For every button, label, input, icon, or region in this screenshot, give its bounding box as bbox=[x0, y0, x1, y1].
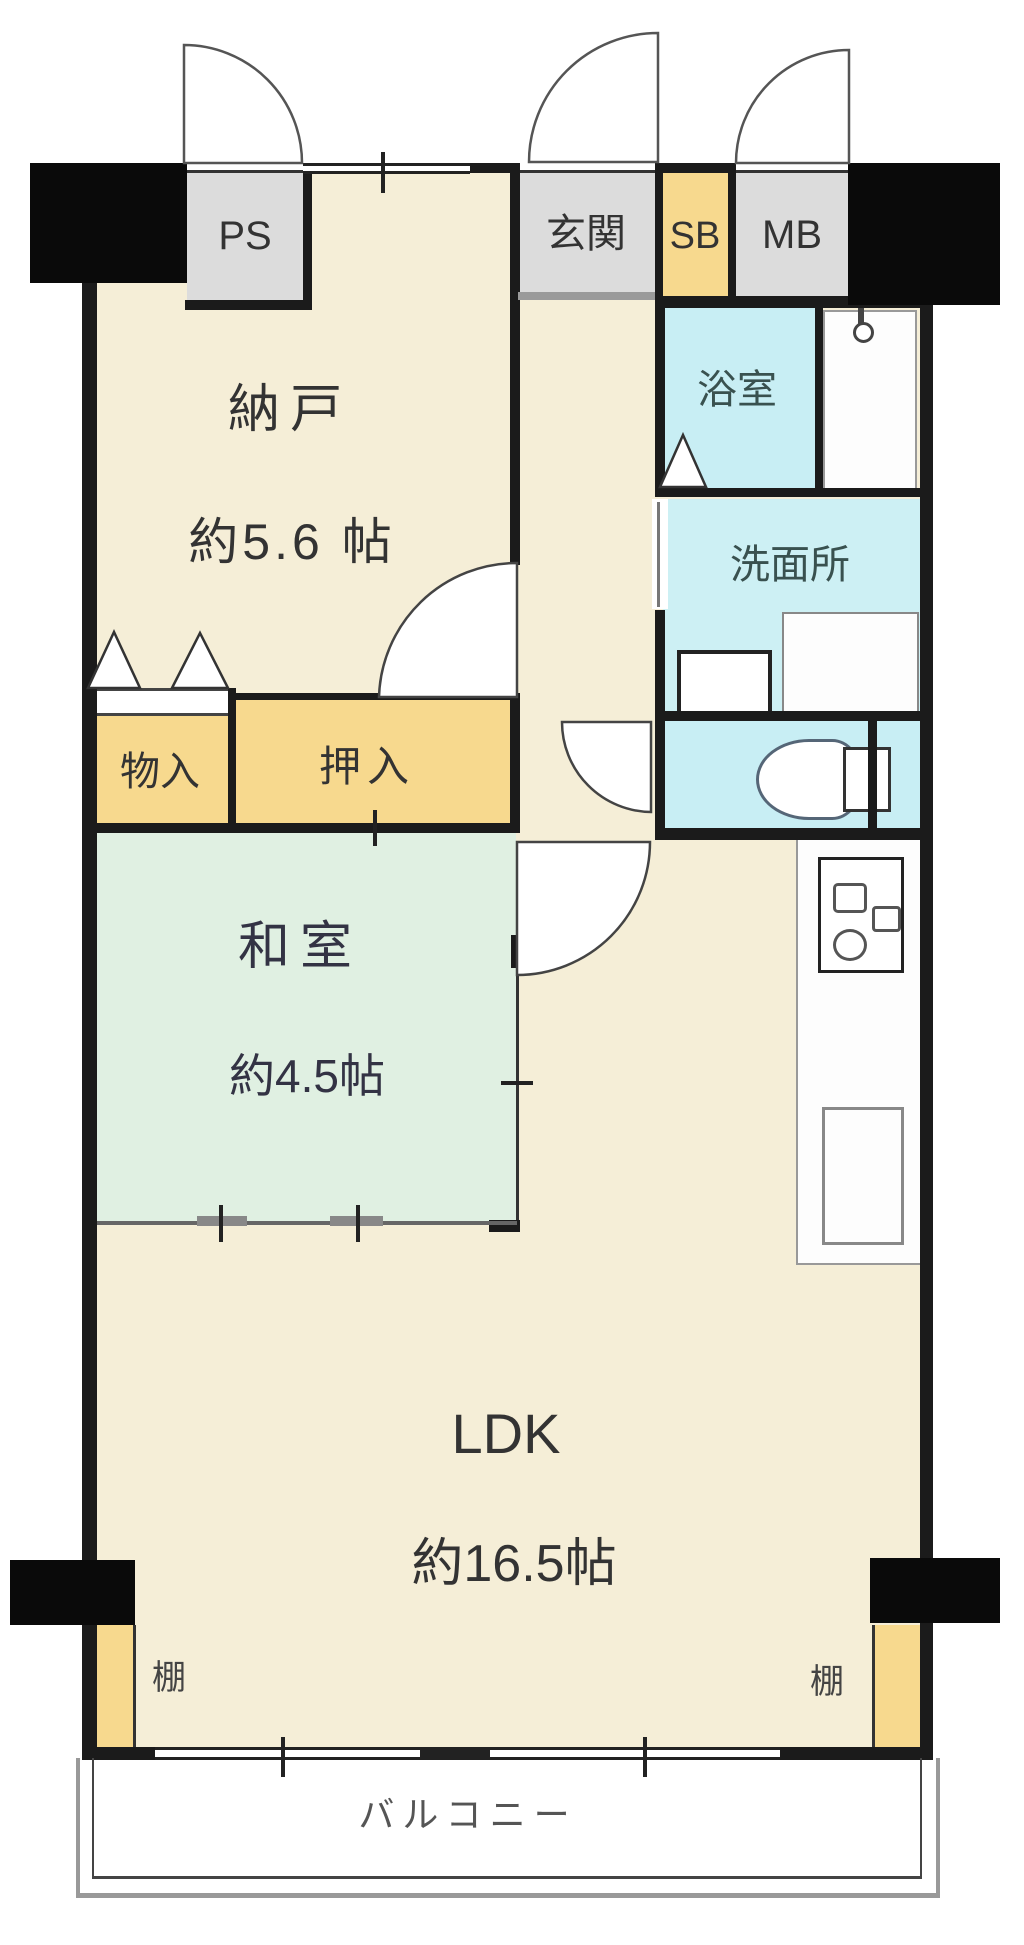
room-size-nando: 約5.6 帖 bbox=[188, 517, 395, 567]
washitsu-right-tick bbox=[501, 1081, 533, 1085]
room-label-monoire: 物入 bbox=[120, 752, 200, 792]
room-label-nando: 納戸 bbox=[228, 384, 352, 436]
mb-door-arc bbox=[736, 50, 849, 163]
tana-left-edge bbox=[133, 1625, 136, 1747]
washroom-doorway bbox=[652, 499, 668, 609]
stove-burner bbox=[833, 929, 867, 961]
wall-nando-right bbox=[510, 163, 520, 565]
washitsu-right-slider bbox=[516, 963, 519, 1222]
room-label-ldk: LDK bbox=[452, 1406, 561, 1462]
ps-door-threshold bbox=[187, 163, 303, 173]
pillar-bottom-left bbox=[10, 1560, 135, 1625]
room-label-senmenjo: 洗面所 bbox=[730, 545, 850, 585]
wall-left bbox=[82, 163, 97, 1760]
room-size-ldk: 約16.5帖 bbox=[411, 1538, 616, 1590]
wall-right bbox=[920, 163, 933, 1760]
oshiire-slider-tick bbox=[373, 810, 377, 846]
room-label-sb: SB bbox=[670, 217, 721, 255]
wall-genkan-sb bbox=[655, 163, 663, 300]
tana-right-edge bbox=[872, 1625, 875, 1747]
pillar-top-left bbox=[30, 163, 187, 283]
room-label-oshiire: 押入 bbox=[319, 746, 415, 788]
washitsu-bottom-tick bbox=[356, 1205, 360, 1242]
floorplan-canvas: PS 玄関 SB MB 納戸 約5.6 帖 浴室 洗面所 物入 押入 和室 約4… bbox=[0, 0, 1024, 1945]
nando-window bbox=[303, 163, 470, 174]
wall-closet-bottom bbox=[97, 823, 517, 833]
washing-machine-pan bbox=[677, 650, 772, 718]
monoire-door-track bbox=[97, 688, 233, 716]
wall-washroom-bottom bbox=[655, 711, 933, 721]
kitchen-sink bbox=[822, 1107, 904, 1245]
wall-monoire-oshiire bbox=[228, 688, 236, 833]
room-label-genkan: 玄関 bbox=[546, 214, 626, 254]
wall-toilet-bottom bbox=[655, 828, 933, 840]
washbasin-counter bbox=[782, 612, 919, 715]
floor-tana-left bbox=[97, 1625, 133, 1747]
wall-ps-bottom bbox=[185, 300, 312, 310]
mb-door-threshold bbox=[736, 163, 848, 173]
shelf-label-right: 棚 bbox=[810, 1665, 844, 1699]
genkan-step bbox=[518, 292, 655, 300]
ps-door-arc bbox=[184, 45, 302, 163]
nando-window-tick bbox=[381, 152, 385, 193]
stove-burner bbox=[833, 883, 867, 913]
faucet-icon bbox=[853, 322, 874, 343]
shelf-label-left: 棚 bbox=[152, 1661, 186, 1695]
washitsu-bottom-line bbox=[97, 1221, 517, 1225]
pillar-bottom-right bbox=[870, 1558, 1000, 1623]
room-label-washitsu: 和室 bbox=[238, 921, 362, 973]
washitsu-bottom-tick bbox=[219, 1205, 223, 1242]
wall-hall-wet-upper bbox=[655, 300, 665, 497]
floor-washitsu bbox=[97, 831, 516, 1222]
toilet-tank-icon bbox=[843, 747, 891, 812]
wall-ps-right bbox=[303, 163, 312, 310]
stove-burner bbox=[872, 906, 901, 932]
room-size-washitsu: 約4.5帖 bbox=[229, 1053, 385, 1099]
room-label-mb: MB bbox=[762, 215, 822, 255]
floor-tana-right bbox=[875, 1625, 920, 1747]
wall-oshiire-top bbox=[233, 693, 517, 700]
wall-toilet-duct bbox=[868, 721, 877, 828]
wall-bath-bottom bbox=[655, 488, 933, 497]
washroom-door-line bbox=[657, 502, 660, 607]
balcony-label: バルコニー bbox=[358, 1797, 577, 1833]
pillar-top-right bbox=[848, 163, 1000, 305]
wall-sb-mb bbox=[728, 163, 736, 300]
room-label-ps: PS bbox=[218, 216, 271, 256]
entry-door-threshold bbox=[520, 163, 655, 173]
wall-bath-tub bbox=[815, 304, 823, 492]
room-label-yokushitsu: 浴室 bbox=[697, 370, 777, 410]
wall-hall-oshiire bbox=[510, 693, 520, 833]
entry-door-arc bbox=[529, 33, 658, 162]
